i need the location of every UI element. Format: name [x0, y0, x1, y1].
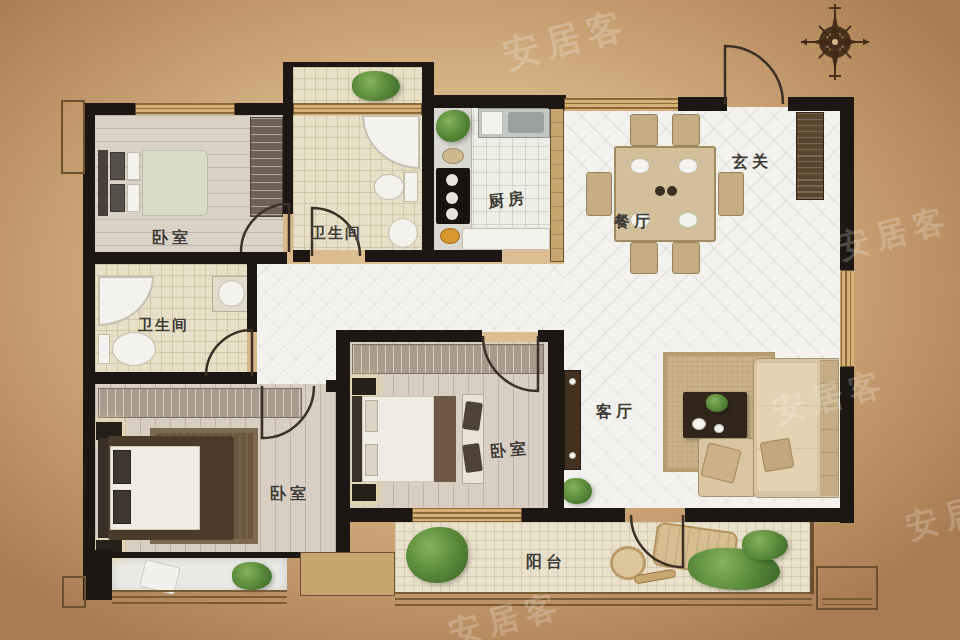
- room-label-dining: 餐厅: [614, 212, 654, 233]
- balcony-door: [631, 515, 683, 567]
- bedroom-bottom-left-door: [262, 386, 314, 438]
- room-label-bedroom-bottom-left: 卧室: [270, 484, 310, 505]
- room-label-balcony: 阳台: [526, 552, 566, 573]
- entrance-door: [725, 46, 783, 104]
- room-label-bedroom-middle: 卧室: [489, 438, 531, 462]
- room-label-foyer: 玄关: [732, 152, 772, 173]
- room-label-living: 客厅: [596, 402, 636, 423]
- bedroom-top-left-door: [241, 204, 289, 252]
- compass-icon: [793, 2, 877, 86]
- room-label-bathroom-left: 卫生间: [138, 316, 189, 335]
- bedroom-middle-door: [483, 336, 538, 391]
- floor-plan: 卧室 卫生间 厨房 餐厅 玄关 卫生间 卧室 卧室 客厅 阳台 安居客 安居客 …: [0, 0, 960, 640]
- room-label-bedroom-top-left: 卧室: [152, 228, 192, 249]
- bathroom-left-door: [206, 330, 252, 376]
- room-label-bathroom-top: 卫生间: [311, 224, 362, 243]
